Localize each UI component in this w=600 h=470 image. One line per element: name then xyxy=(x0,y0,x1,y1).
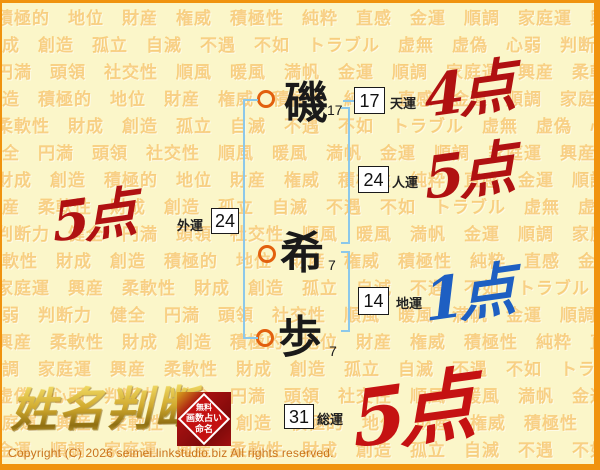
surname-stroke-count: 17 xyxy=(327,103,343,117)
jinun-value-box: 24 xyxy=(358,166,389,193)
gaiun-score: 5点 xyxy=(50,184,133,249)
chiun-bracket-tick-top xyxy=(341,251,350,253)
tenun-score: 4点 xyxy=(422,56,512,126)
chiun-bracket-tick-bottom xyxy=(341,330,350,332)
given-char1-stroke-count: 7 xyxy=(328,258,336,272)
chiun-label: 地運 xyxy=(396,297,422,310)
given-char2-circle xyxy=(256,329,274,347)
gaiun-bracket-line xyxy=(243,99,245,339)
gaiun-bracket-tick-bottom xyxy=(243,337,258,339)
souun-score: 5点 xyxy=(350,366,471,460)
tenun-label: 天運 xyxy=(390,97,416,110)
name-analysis-diagram: 磯 17 希 7 歩 7 17 天運 24 人運 外運 24 14 地運 31 … xyxy=(0,0,600,470)
given-char2-stroke-count: 7 xyxy=(329,344,337,358)
jinun-label: 人運 xyxy=(392,176,418,189)
tenun-value-box: 17 xyxy=(354,87,385,114)
seimei-handan-result-page: 積極的 地位 財産 権威 積極性 純粋 直感 金運 順調 家庭運 興産 柔軟性 … xyxy=(0,0,600,470)
chiun-score: 1点 xyxy=(422,260,512,330)
given-char2: 歩 xyxy=(278,316,322,360)
given-char1-circle xyxy=(258,245,276,263)
given-char1: 希 xyxy=(280,232,324,276)
souun-value-box: 31 xyxy=(284,404,314,429)
jinun-bracket-tick-top xyxy=(341,107,350,109)
surname-char: 磯 xyxy=(284,82,328,126)
chiun-bracket-line xyxy=(348,251,350,332)
gaiun-label: 外運 xyxy=(177,219,203,232)
chiun-value-box: 14 xyxy=(358,287,389,315)
jinun-bracket-line xyxy=(348,107,350,244)
tenun-tick-line xyxy=(343,100,354,102)
surname-char-circle xyxy=(257,90,275,108)
gaiun-value-box: 24 xyxy=(211,208,239,234)
jinun-score: 5点 xyxy=(422,138,512,208)
souun-label: 総運 xyxy=(317,413,343,426)
gaiun-bracket-tick-top xyxy=(243,99,258,101)
jinun-bracket-tick-bottom xyxy=(341,242,350,244)
